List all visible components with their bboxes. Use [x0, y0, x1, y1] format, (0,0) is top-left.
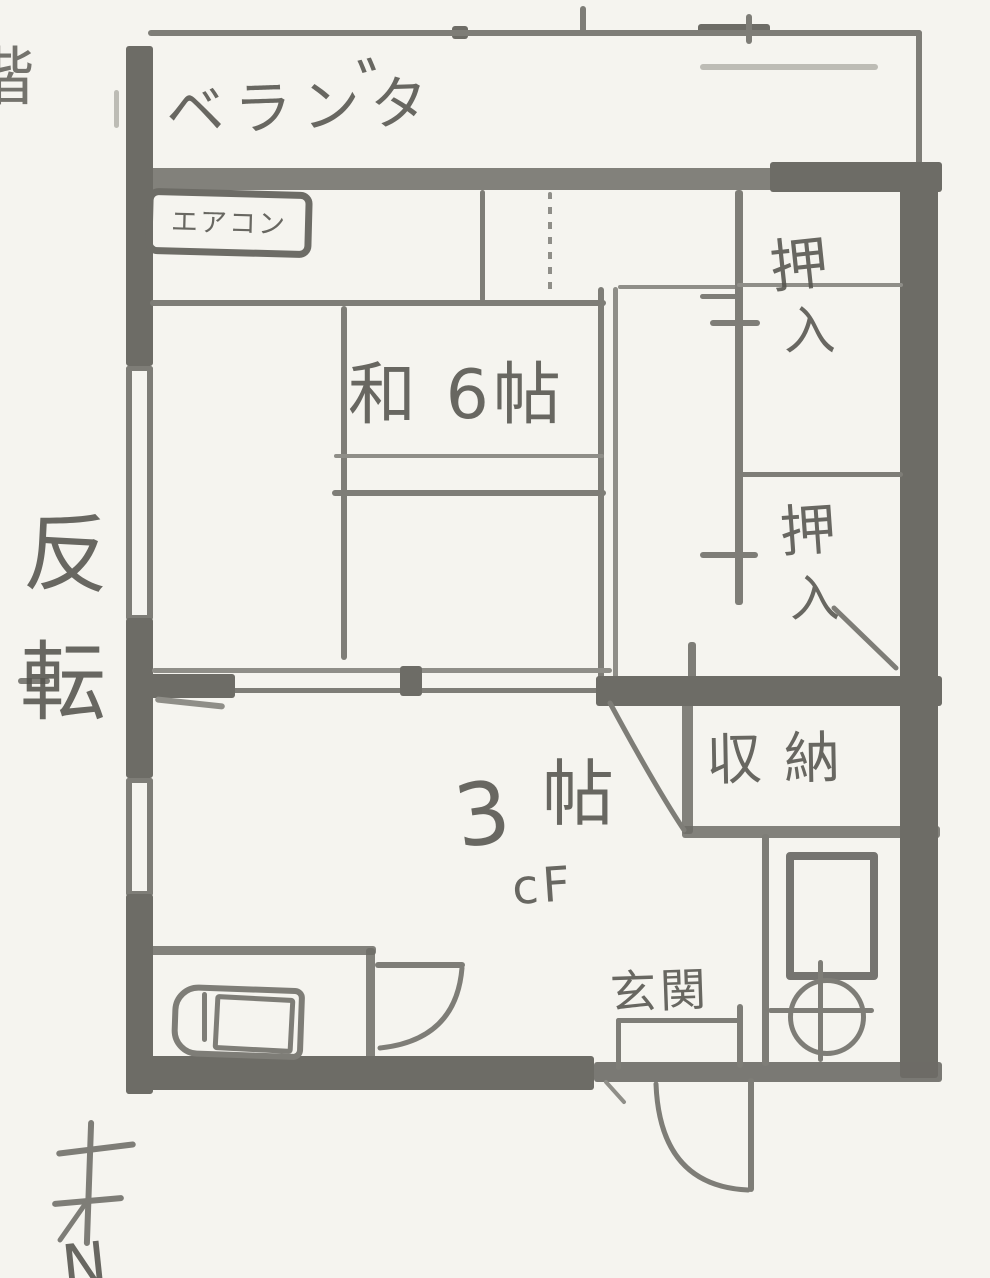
tatami-line-v-dashed	[548, 192, 552, 292]
scan-mark	[746, 14, 752, 44]
wall-left-middle	[126, 618, 153, 778]
tatami-line-h-top	[150, 300, 606, 306]
toilet-tank-line	[202, 992, 207, 1042]
scan-mark	[114, 90, 119, 128]
window-cap	[126, 366, 153, 371]
sliding-door-line	[152, 668, 612, 673]
partial-floor-label: 階	[0, 46, 34, 110]
entrance-door-arc	[656, 1084, 748, 1190]
bath-door-arc	[380, 968, 462, 1048]
tatami-line-h-mid2	[332, 490, 606, 496]
closet-tick	[710, 320, 760, 326]
window-left-lower	[147, 778, 153, 896]
sliding-door-stroke	[155, 696, 225, 709]
window-left-lower	[126, 778, 132, 896]
north-letter: N	[59, 1234, 110, 1278]
sliding-door-tick	[400, 666, 422, 696]
closet-upper-label-1: 押	[767, 233, 831, 297]
aircon-badge: エアコン	[145, 188, 313, 258]
entrance-tick	[606, 1082, 624, 1102]
reversal-note-char2: 転	[20, 640, 106, 726]
door-frame-stub	[688, 642, 696, 680]
tatami-line-v-right2	[613, 287, 618, 683]
wall-top	[140, 168, 786, 190]
wall-bottom-left	[126, 1056, 594, 1090]
floor-plan-scan: 階 ベランタ ゛ エアコン 和 6帖 押 入 押 入	[0, 0, 990, 1278]
kitchen-floor-type: cF	[510, 860, 575, 912]
tatami-line-v-main	[341, 306, 347, 660]
window-cap	[126, 778, 153, 783]
tatami-line-v-right	[598, 287, 604, 683]
washitsu-label: 和 6帖	[348, 362, 565, 430]
closet1-bottom	[737, 472, 903, 477]
divider-wall-thick	[596, 676, 942, 706]
kitchen-size-number: 3	[449, 769, 515, 862]
closet-lower-label-1: 押	[778, 502, 838, 562]
closet-lower-stroke	[834, 608, 896, 668]
closet-tick	[700, 552, 758, 558]
faucet-cross-v	[818, 960, 823, 1062]
entrance-step-h	[616, 1018, 742, 1023]
entrance-door-leaf	[748, 1078, 754, 1192]
aircon-label: エアコン	[171, 208, 288, 238]
storage-left-wall	[682, 694, 693, 834]
partition-line	[762, 834, 769, 1066]
wall-right	[900, 162, 938, 1078]
balcony-dakuten-mark: ゛	[347, 55, 426, 134]
scan-mark	[700, 64, 878, 70]
window-left-upper	[147, 366, 153, 620]
closet-top-line	[618, 285, 740, 289]
sliding-door-blob	[150, 674, 235, 698]
north-arrow-shaft	[84, 1120, 94, 1246]
closet-lower-label-2: 入	[790, 574, 840, 624]
window-left-upper	[126, 366, 132, 620]
kitchen-size-unit: 帖	[542, 758, 614, 830]
entrance-step-v	[616, 1018, 621, 1070]
bath-right-wall	[366, 948, 375, 1072]
bath-top-wall	[146, 946, 376, 955]
closet-upper-label-2: 入	[784, 306, 836, 358]
storage-door-arc	[610, 703, 684, 830]
entrance-step-v2	[737, 1004, 743, 1068]
reversal-note-char1: 反	[22, 510, 112, 600]
toilet-seat	[213, 994, 296, 1054]
closet-tick	[700, 294, 740, 299]
balcony-outer-rail	[148, 30, 922, 36]
tatami-line-h-mid1	[334, 454, 604, 458]
washer-pan	[786, 852, 878, 980]
bath-door-leaf	[375, 962, 465, 968]
faucet-circle	[788, 978, 866, 1056]
north-arrow-crossbar	[56, 1141, 136, 1157]
storage-bottom-wall	[682, 826, 940, 838]
entrance-label: 玄関	[609, 966, 711, 1015]
storage-label: 収納	[706, 731, 863, 790]
closet-left-wall	[735, 190, 743, 605]
tatami-line-v	[480, 190, 485, 302]
balcony-right-rail	[916, 30, 922, 170]
